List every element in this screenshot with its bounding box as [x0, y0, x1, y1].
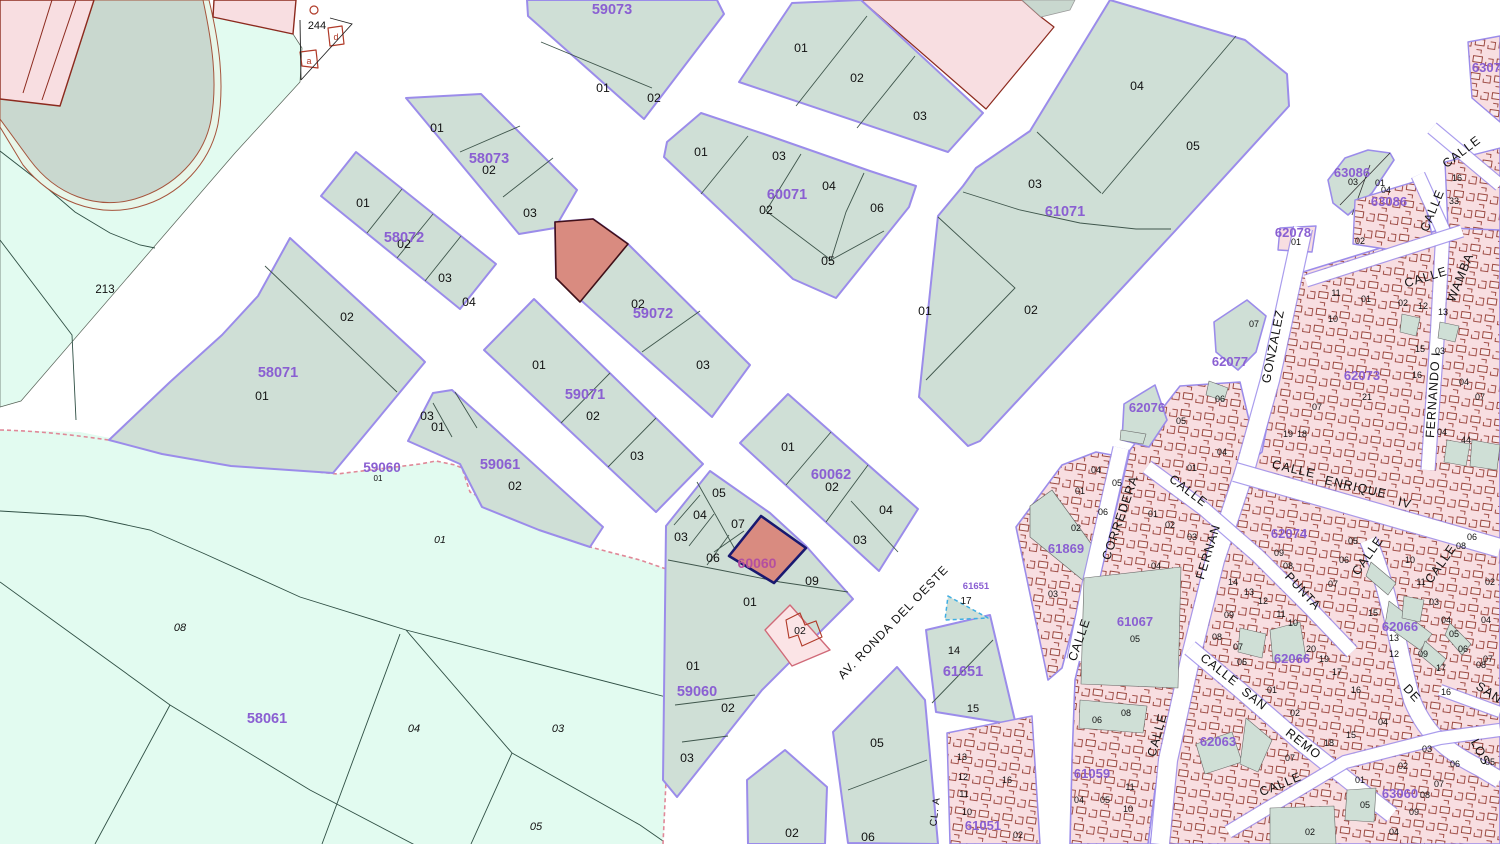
svg-text:03: 03 [630, 449, 644, 463]
svg-text:01: 01 [434, 534, 446, 546]
svg-text:02: 02 [1165, 520, 1175, 530]
svg-text:33: 33 [1449, 196, 1459, 206]
svg-text:60060: 60060 [738, 555, 777, 571]
svg-text:08: 08 [1420, 790, 1430, 800]
svg-text:02: 02 [586, 409, 600, 423]
svg-text:58061: 58061 [247, 711, 287, 727]
svg-text:63086: 63086 [1371, 194, 1407, 209]
svg-text:244: 244 [308, 20, 326, 32]
svg-text:02: 02 [1355, 236, 1365, 246]
svg-text:06: 06 [1339, 555, 1349, 565]
svg-text:12: 12 [958, 772, 968, 782]
svg-text:02: 02 [1290, 708, 1300, 718]
svg-text:03: 03 [674, 530, 688, 544]
svg-text:15: 15 [1415, 344, 1425, 354]
svg-text:09: 09 [1224, 610, 1234, 620]
svg-text:63060: 63060 [1382, 786, 1418, 801]
svg-text:03: 03 [696, 358, 710, 372]
svg-text:02: 02 [1398, 298, 1408, 308]
svg-text:58072: 58072 [384, 230, 424, 246]
svg-text:62074: 62074 [1271, 526, 1308, 541]
svg-text:61869: 61869 [1048, 541, 1084, 556]
svg-text:07: 07 [731, 517, 745, 531]
svg-text:07: 07 [1312, 402, 1322, 412]
svg-text:01: 01 [1148, 509, 1158, 519]
svg-text:213: 213 [95, 284, 114, 296]
svg-text:07: 07 [1249, 319, 1259, 329]
svg-text:04: 04 [1481, 615, 1491, 625]
svg-text:01: 01 [431, 420, 445, 434]
svg-text:61067: 61067 [1117, 614, 1153, 629]
svg-text:02: 02 [1013, 830, 1023, 840]
svg-text:06: 06 [1450, 759, 1460, 769]
svg-text:06: 06 [1467, 532, 1477, 542]
svg-text:18: 18 [1297, 429, 1307, 439]
svg-text:03: 03 [523, 206, 537, 220]
svg-text:05: 05 [821, 254, 835, 268]
svg-text:10: 10 [962, 807, 972, 817]
svg-text:17: 17 [960, 596, 972, 607]
svg-text:13: 13 [1244, 587, 1254, 597]
svg-text:15: 15 [1346, 730, 1356, 740]
svg-text:04: 04 [1074, 795, 1084, 805]
svg-text:17: 17 [1332, 667, 1342, 677]
svg-text:03: 03 [1422, 744, 1432, 754]
svg-text:05: 05 [1449, 629, 1459, 639]
svg-text:02: 02 [785, 826, 799, 840]
svg-text:59060: 59060 [677, 684, 717, 700]
svg-text:11: 11 [1125, 782, 1134, 792]
svg-text:04: 04 [1217, 447, 1227, 457]
svg-text:05: 05 [1176, 416, 1186, 426]
svg-text:06: 06 [1215, 394, 1225, 404]
svg-text:07: 07 [1475, 392, 1485, 402]
svg-text:62077: 62077 [1212, 354, 1248, 369]
svg-text:04: 04 [822, 179, 836, 193]
svg-text:10: 10 [1288, 618, 1298, 628]
svg-text:18: 18 [1324, 738, 1334, 748]
svg-text:05: 05 [1100, 795, 1110, 805]
svg-text:02: 02 [647, 91, 661, 105]
svg-text:01: 01 [1361, 294, 1371, 304]
svg-text:01: 01 [1187, 463, 1197, 473]
svg-text:02: 02 [1305, 827, 1315, 837]
svg-text:05: 05 [1348, 536, 1358, 546]
svg-text:16: 16 [1452, 173, 1462, 183]
svg-text:17: 17 [1436, 663, 1446, 673]
svg-text:01: 01 [596, 81, 610, 95]
svg-text:61059: 61059 [1074, 766, 1110, 781]
svg-text:05: 05 [870, 736, 884, 750]
svg-text:21: 21 [1362, 392, 1372, 402]
svg-text:15: 15 [1368, 608, 1378, 618]
svg-text:61071: 61071 [1045, 204, 1085, 220]
svg-text:10: 10 [1123, 804, 1133, 814]
svg-text:04: 04 [1091, 465, 1101, 475]
svg-text:01: 01 [1355, 775, 1365, 785]
svg-text:01: 01 [1267, 685, 1277, 695]
svg-text:62073: 62073 [1344, 368, 1380, 383]
svg-text:62066: 62066 [1382, 619, 1418, 634]
svg-text:04: 04 [693, 508, 707, 522]
svg-text:59061: 59061 [480, 457, 520, 473]
svg-text:01: 01 [430, 121, 444, 135]
svg-text:05: 05 [712, 486, 726, 500]
svg-text:01: 01 [781, 440, 795, 454]
svg-text:10: 10 [1405, 555, 1415, 565]
svg-text:06: 06 [1092, 715, 1102, 725]
svg-text:09: 09 [1274, 548, 1284, 558]
svg-text:04: 04 [1378, 717, 1388, 727]
svg-text:01: 01 [743, 595, 757, 609]
svg-text:05: 05 [1130, 634, 1140, 644]
svg-text:01: 01 [532, 358, 546, 372]
svg-text:d: d [333, 32, 338, 42]
svg-text:12: 12 [1389, 649, 1399, 659]
svg-text:09: 09 [1418, 649, 1428, 659]
svg-text:03: 03 [1028, 177, 1042, 191]
svg-text:03: 03 [438, 271, 452, 285]
svg-text:59072: 59072 [633, 306, 673, 322]
svg-text:11: 11 [1331, 288, 1340, 298]
svg-text:06: 06 [706, 551, 720, 565]
svg-text:03: 03 [1429, 597, 1439, 607]
svg-text:12: 12 [1418, 301, 1428, 311]
svg-text:09: 09 [805, 574, 819, 588]
svg-text:62063: 62063 [1200, 734, 1236, 749]
svg-text:07: 07 [1483, 654, 1493, 664]
svg-text:16: 16 [1441, 687, 1451, 697]
svg-text:04: 04 [1389, 827, 1399, 837]
svg-text:01: 01 [694, 145, 708, 159]
svg-text:06: 06 [1098, 507, 1108, 517]
svg-text:14: 14 [1228, 577, 1238, 587]
svg-text:03: 03 [1187, 532, 1197, 542]
svg-text:07: 07 [1285, 753, 1295, 763]
svg-text:59071: 59071 [565, 387, 605, 403]
svg-text:07: 07 [1328, 579, 1338, 589]
svg-text:01: 01 [356, 196, 370, 210]
svg-text:03: 03 [680, 751, 694, 765]
svg-text:16: 16 [1002, 775, 1012, 785]
svg-text:02: 02 [1398, 761, 1408, 771]
svg-text:13: 13 [1389, 633, 1399, 643]
svg-text:02: 02 [340, 310, 354, 324]
svg-text:04: 04 [1151, 561, 1161, 571]
svg-text:06: 06 [870, 201, 884, 215]
svg-text:63086: 63086 [1334, 165, 1370, 180]
svg-text:06: 06 [861, 830, 875, 844]
svg-text:61651: 61651 [943, 664, 983, 680]
svg-text:09: 09 [1409, 807, 1419, 817]
svg-text:05: 05 [1360, 800, 1370, 810]
svg-text:01: 01 [794, 41, 808, 55]
svg-text:01: 01 [918, 304, 932, 318]
svg-text:04: 04 [1130, 79, 1144, 93]
svg-text:60062: 60062 [811, 467, 851, 483]
svg-text:62066: 62066 [1274, 651, 1310, 666]
svg-text:05: 05 [1186, 139, 1200, 153]
svg-text:13: 13 [957, 752, 967, 762]
svg-text:03: 03 [772, 149, 786, 163]
svg-text:03: 03 [853, 533, 867, 547]
svg-text:08: 08 [1212, 632, 1222, 642]
svg-text:02: 02 [794, 625, 806, 637]
svg-text:07: 07 [1434, 779, 1444, 789]
svg-text:01: 01 [686, 659, 700, 673]
svg-text:13: 13 [1438, 307, 1448, 317]
svg-text:01: 01 [1075, 486, 1085, 496]
svg-text:a: a [306, 56, 311, 66]
svg-text:01: 01 [374, 474, 383, 483]
svg-text:61651: 61651 [963, 581, 990, 592]
svg-text:11: 11 [959, 789, 968, 799]
svg-text:04: 04 [1441, 615, 1451, 625]
svg-text:05: 05 [1112, 478, 1122, 488]
svg-text:61051: 61051 [965, 818, 1001, 833]
svg-text:03: 03 [552, 723, 565, 735]
svg-text:04: 04 [879, 503, 893, 517]
svg-text:19: 19 [1283, 429, 1293, 439]
svg-text:44: 44 [1461, 435, 1471, 445]
svg-text:12: 12 [1258, 596, 1268, 606]
svg-text:08: 08 [1121, 708, 1131, 718]
svg-text:02: 02 [1071, 523, 1081, 533]
svg-text:01: 01 [255, 389, 269, 403]
svg-text:58071: 58071 [258, 365, 298, 381]
svg-text:58073: 58073 [469, 151, 509, 167]
svg-text:19: 19 [1319, 654, 1329, 664]
svg-text:02: 02 [721, 701, 735, 715]
svg-text:07: 07 [1233, 642, 1243, 652]
svg-text:14: 14 [948, 645, 960, 657]
svg-text:02: 02 [1024, 303, 1038, 317]
svg-text:03: 03 [913, 109, 927, 123]
svg-text:11: 11 [1276, 609, 1285, 619]
svg-text:02: 02 [759, 203, 773, 217]
svg-text:62078: 62078 [1275, 225, 1311, 240]
svg-text:15: 15 [967, 703, 979, 715]
svg-text:62076: 62076 [1129, 400, 1165, 415]
svg-text:63070: 63070 [1472, 60, 1500, 75]
svg-text:59060: 59060 [363, 460, 401, 475]
svg-text:16: 16 [1351, 685, 1361, 695]
svg-text:04: 04 [408, 723, 420, 735]
svg-text:05: 05 [530, 821, 543, 833]
svg-text:06: 06 [1237, 657, 1247, 667]
svg-text:06: 06 [1458, 644, 1468, 654]
svg-text:10: 10 [1328, 314, 1338, 324]
svg-text:04: 04 [1437, 427, 1447, 437]
svg-text:03: 03 [1048, 589, 1058, 599]
svg-text:02: 02 [850, 71, 864, 85]
svg-text:02: 02 [508, 479, 522, 493]
svg-text:04: 04 [462, 295, 476, 309]
svg-text:60071: 60071 [767, 187, 807, 203]
svg-text:04: 04 [1459, 377, 1469, 387]
svg-text:02: 02 [1485, 577, 1495, 587]
svg-text:59073: 59073 [592, 2, 632, 18]
svg-text:08: 08 [174, 622, 187, 634]
svg-text:16: 16 [1412, 370, 1422, 380]
